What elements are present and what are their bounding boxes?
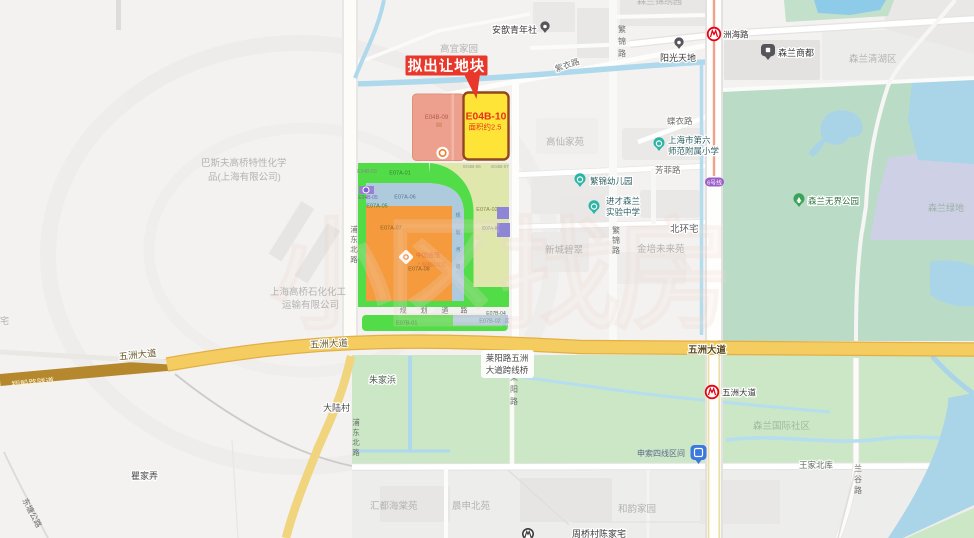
svg-text:E04B-10: E04B-10 — [466, 112, 507, 123]
svg-text:E07A-06: E07A-06 — [394, 195, 415, 201]
svg-text:五洲大道: 五洲大道 — [688, 344, 727, 356]
svg-text:汇都海棠苑: 汇都海棠苑 — [370, 500, 418, 512]
svg-text:高宜家园: 高宜家园 — [440, 43, 478, 55]
svg-text:森兰商都: 森兰商都 — [778, 47, 814, 58]
svg-text:蝶衣路: 蝶衣路 — [667, 116, 693, 126]
svg-text:E07A-01: E07A-01 — [389, 171, 410, 177]
svg-text:路: 路 — [350, 254, 358, 264]
svg-text:运输有限公司: 运输有限公司 — [282, 299, 339, 311]
svg-text:阳: 阳 — [510, 385, 518, 394]
svg-text:品(上海有限公司): 品(上海有限公司) — [208, 171, 281, 183]
svg-text:森兰国际社区: 森兰国际社区 — [753, 420, 811, 432]
svg-text:安歆青年社: 安歆青年社 — [492, 24, 537, 35]
svg-text:申索四线区间: 申索四线区间 — [637, 448, 685, 458]
svg-text:师范附属小学: 师范附属小学 — [668, 146, 720, 156]
svg-text:莱阳路五洲: 莱阳路五洲 — [486, 353, 529, 363]
svg-text:森兰清湖区: 森兰清湖区 — [849, 53, 897, 65]
svg-text:上海市第六: 上海市第六 — [668, 135, 711, 145]
svg-text:瞿家弄: 瞿家弄 — [131, 470, 158, 481]
svg-text:谷: 谷 — [854, 475, 862, 484]
svg-text:6号线: 6号线 — [707, 179, 722, 187]
svg-text:E04B-06: E04B-06 — [463, 164, 481, 169]
svg-text:高仙家苑: 高仙家苑 — [546, 136, 585, 148]
svg-text:锦: 锦 — [612, 235, 620, 245]
svg-text:和韵家园: 和韵家园 — [618, 503, 656, 515]
svg-text:王家北库: 王家北库 — [799, 460, 834, 470]
svg-text:朱家浜: 朱家浜 — [369, 374, 396, 385]
svg-text:路: 路 — [612, 245, 620, 255]
svg-text:晨申北苑: 晨申北苑 — [452, 500, 491, 512]
svg-text:锦: 锦 — [618, 36, 626, 46]
svg-text:五洲大道: 五洲大道 — [310, 337, 349, 351]
svg-text:E04B-09: E04B-09 — [425, 115, 449, 121]
svg-text:繁: 繁 — [618, 24, 626, 34]
svg-text:兰: 兰 — [854, 463, 862, 473]
svg-text:路: 路 — [618, 48, 626, 58]
svg-text:东: 东 — [350, 234, 358, 244]
svg-text:五洲大道: 五洲大道 — [722, 388, 757, 398]
svg-text:浦: 浦 — [352, 417, 360, 427]
svg-text:宅: 宅 — [0, 315, 9, 326]
svg-text:路: 路 — [352, 447, 360, 457]
svg-text:大陆村: 大陆村 — [323, 402, 350, 413]
svg-text:路: 路 — [854, 485, 862, 495]
svg-text:E04B-05: E04B-05 — [358, 195, 378, 201]
svg-text:森兰无界公园: 森兰无界公园 — [808, 196, 859, 206]
svg-text:森兰锦绣园: 森兰锦绣园 — [637, 0, 682, 6]
svg-text:北: 北 — [350, 245, 358, 254]
svg-text:拟出让地块: 拟出让地块 — [408, 57, 486, 75]
svg-text:阳光天地: 阳光天地 — [660, 52, 696, 63]
svg-text:大道跨线桥: 大道跨线桥 — [486, 365, 529, 375]
svg-text:周桥村陈家宅: 周桥村陈家宅 — [572, 528, 626, 538]
svg-text:实验中学: 实验中学 — [606, 207, 641, 217]
svg-text:北环宅: 北环宅 — [670, 223, 699, 235]
svg-text:小区找房: 小区找房 — [270, 208, 727, 344]
svg-text:巴斯夫高桥特性化学: 巴斯夫高桥特性化学 — [201, 157, 287, 169]
svg-text:洲海路: 洲海路 — [723, 30, 749, 40]
svg-text:浦: 浦 — [350, 224, 358, 234]
svg-text:北: 北 — [352, 438, 360, 447]
svg-text:面积约2.5: 面积约2.5 — [469, 122, 502, 132]
svg-text:进才森兰: 进才森兰 — [606, 196, 640, 206]
svg-text:芳菲路: 芳菲路 — [655, 165, 681, 175]
svg-text:E04B-07: E04B-07 — [491, 164, 509, 169]
svg-text:新城碧翠: 新城碧翠 — [545, 244, 584, 256]
svg-text:东: 东 — [352, 427, 360, 437]
svg-text:路: 路 — [510, 396, 518, 406]
svg-text:金培未来苑: 金培未来苑 — [637, 243, 685, 255]
svg-text:繁锦幼儿园: 繁锦幼儿园 — [590, 176, 633, 186]
svg-text:繁: 繁 — [612, 225, 620, 235]
svg-text:森兰绿地: 森兰绿地 — [928, 202, 964, 213]
svg-text:上海高桥石化化工: 上海高桥石化化工 — [270, 286, 347, 298]
svg-text:E04B-03: E04B-03 — [357, 169, 377, 175]
